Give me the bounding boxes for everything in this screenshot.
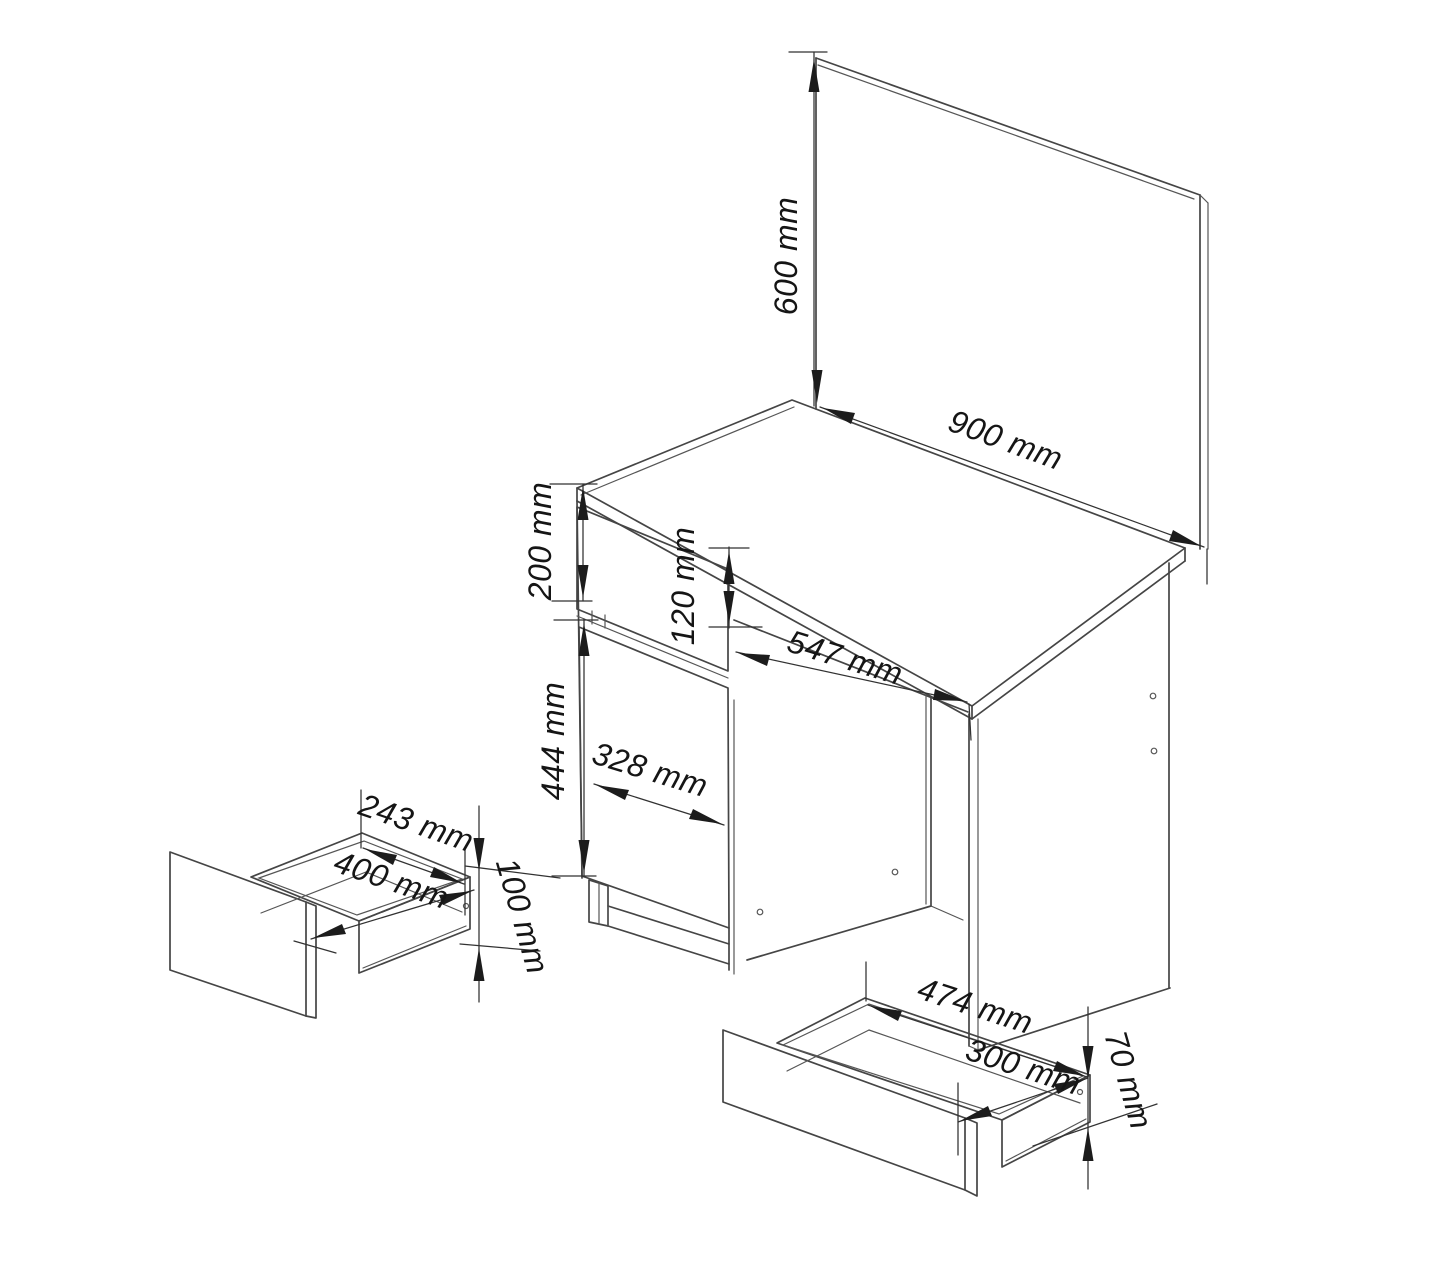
large-drawer-bottom-inset <box>1006 1119 1086 1161</box>
technical-drawing-page: 600 mm 900 mm 200 mm 120 mm <box>0 0 1445 1268</box>
cam-hole-panel-2 <box>1151 748 1157 754</box>
arrowhead <box>474 948 485 981</box>
dim-large-drawer-height: 70 mm <box>1033 1007 1160 1189</box>
cam-hole-panel-1 <box>1150 693 1156 699</box>
dim-small-drawer-depth: 400 mm <box>294 843 474 953</box>
arrowhead <box>578 565 589 598</box>
dim-drawer-front-height: 200 mm <box>522 482 597 602</box>
large-drawer-hole <box>1078 1090 1083 1095</box>
mirror-corner-edge <box>1200 195 1208 203</box>
dim-mirror-height-label: 600 mm <box>768 197 804 316</box>
dim-kneehole-width-label: 547 mm <box>783 623 907 692</box>
small-drawer-front-panel <box>170 852 306 1016</box>
desk-top-slab-front-right <box>972 561 1185 719</box>
dim-door-width: 328 mm <box>588 735 724 825</box>
arrowhead <box>738 653 770 666</box>
floor-back-edge <box>747 906 931 960</box>
dim-mirror-width-label: 900 mm <box>944 402 1068 476</box>
pedestal-plinth-bottom <box>608 926 729 964</box>
right-side-panel <box>969 563 1170 1050</box>
cam-hole-back-1 <box>757 909 763 915</box>
small-drawer-hole <box>464 904 469 909</box>
small-drawer <box>170 833 470 1018</box>
dim-drawer-front-height-label: 200 mm <box>522 482 558 602</box>
desk-top-back-inner <box>581 407 794 495</box>
arrowhead <box>579 840 590 873</box>
mirror-top-edge-inner <box>818 65 1194 199</box>
large-drawer-panel-strip <box>965 1118 977 1196</box>
dim-mirror-height: 600 mm <box>768 52 827 406</box>
dim-kneehole-width: 547 mm <box>736 623 971 740</box>
dim-apron-height: 120 mm <box>665 527 762 646</box>
dim-door-width-label: 328 mm <box>588 735 712 804</box>
arrowhead <box>809 59 820 92</box>
dim-apron-height-label: 120 mm <box>665 527 701 646</box>
dim-small-drawer-height-label: 100 mm <box>489 854 556 978</box>
dim-small-drawer-height: 100 mm <box>460 806 560 1002</box>
dim-door-height: 444 mm <box>535 619 598 877</box>
dim-tick <box>294 941 336 953</box>
dim-large-drawer-depth-label: 300 mm <box>961 1031 1085 1102</box>
dim-large-drawer-width-label: 474 mm <box>913 970 1037 1041</box>
dimension-annotations: 600 mm 900 mm 200 mm 120 mm <box>294 52 1207 1189</box>
dim-door-height-label: 444 mm <box>535 682 571 801</box>
arrowhead <box>812 370 823 403</box>
dim-mirror-width: 900 mm <box>820 402 1207 584</box>
floor-right-edge <box>931 906 963 920</box>
arrowhead <box>313 924 346 938</box>
arrowhead <box>596 785 629 800</box>
arrowhead <box>1083 1046 1094 1079</box>
cam-hole-back-2 <box>892 869 898 875</box>
arrowhead <box>1083 1128 1094 1161</box>
mirror-top-edge <box>816 58 1200 195</box>
dim-small-drawer-inner-width-label: 243 mm <box>354 786 479 859</box>
drawer-gap-line <box>577 616 728 678</box>
arrowhead <box>823 408 855 424</box>
large-drawer-front-panel <box>723 1030 965 1190</box>
dim-large-drawer-height-label: 70 mm <box>1097 1027 1159 1133</box>
small-drawer-bottom-inset <box>363 926 466 968</box>
arrowhead <box>474 838 485 871</box>
arrowhead <box>724 591 735 624</box>
desk-top-slab-front-left <box>577 501 972 719</box>
pedestal-plinth-top <box>608 906 729 944</box>
mirror-panel <box>816 58 1208 549</box>
arrowhead <box>960 1106 992 1121</box>
furniture-technical-drawing: 600 mm 900 mm 200 mm 120 mm <box>0 0 1445 1268</box>
arrowhead <box>689 809 722 824</box>
small-drawer-panel-strip <box>306 902 316 1018</box>
large-drawer <box>723 998 1090 1196</box>
arrowhead <box>933 689 965 701</box>
